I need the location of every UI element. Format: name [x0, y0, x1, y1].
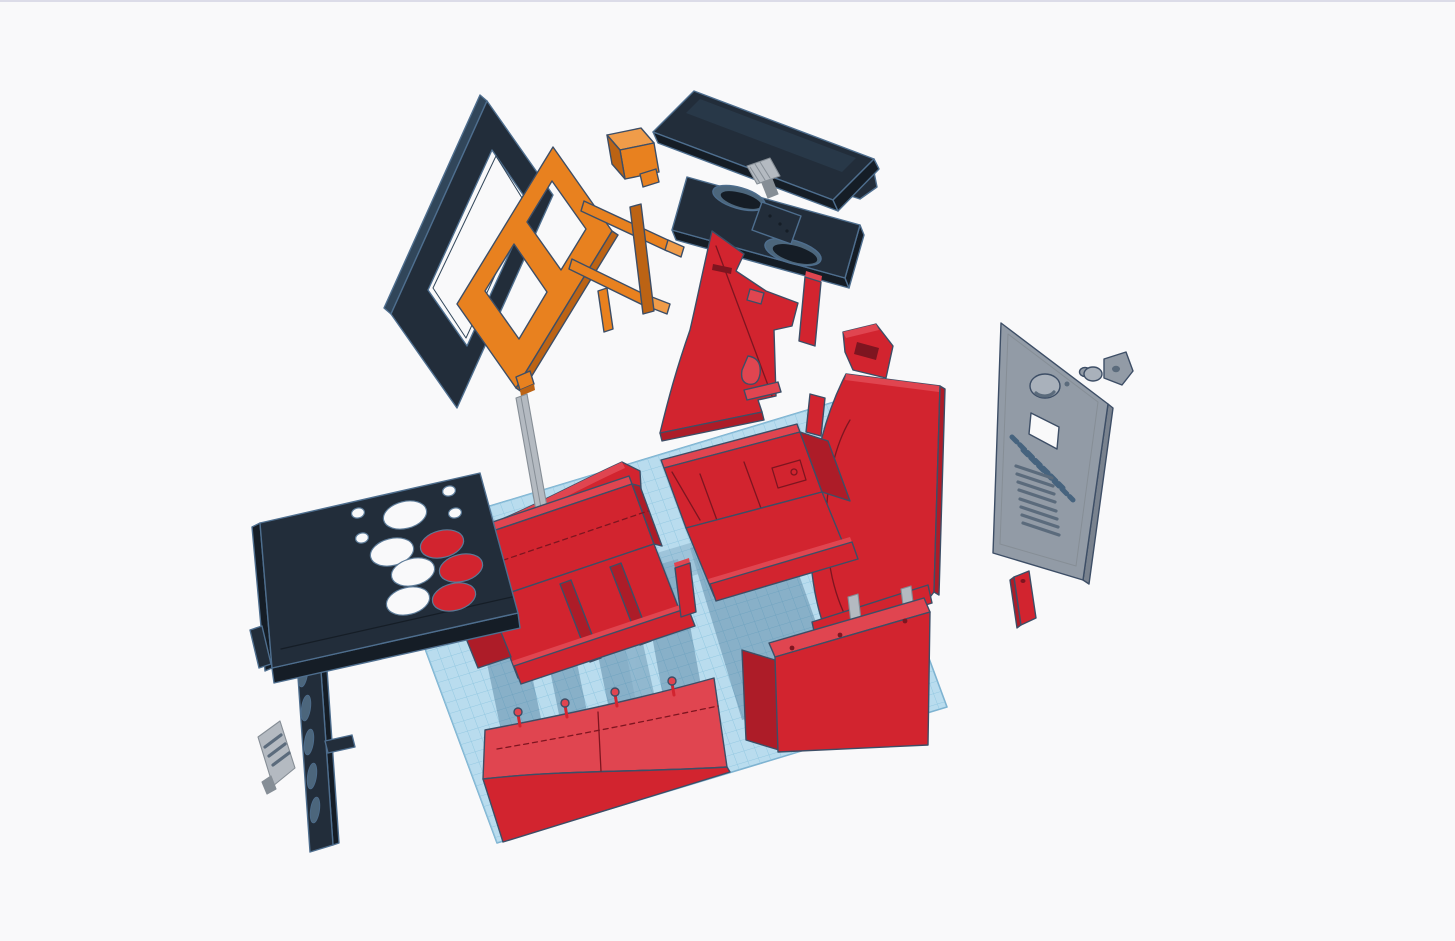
window-top-border — [0, 0, 1455, 2]
door-knob-icon[interactable] — [1030, 374, 1060, 398]
part-mount-block[interactable] — [607, 128, 659, 187]
part-red-strip[interactable] — [1010, 571, 1036, 628]
scene-canvas — [0, 0, 1455, 941]
3d-viewport — [0, 0, 1455, 941]
part-io-plate[interactable] — [258, 721, 295, 794]
part-back-door[interactable] — [993, 323, 1113, 584]
door-screw-hole — [1065, 382, 1070, 387]
part-door-lock[interactable] — [1080, 352, 1134, 385]
